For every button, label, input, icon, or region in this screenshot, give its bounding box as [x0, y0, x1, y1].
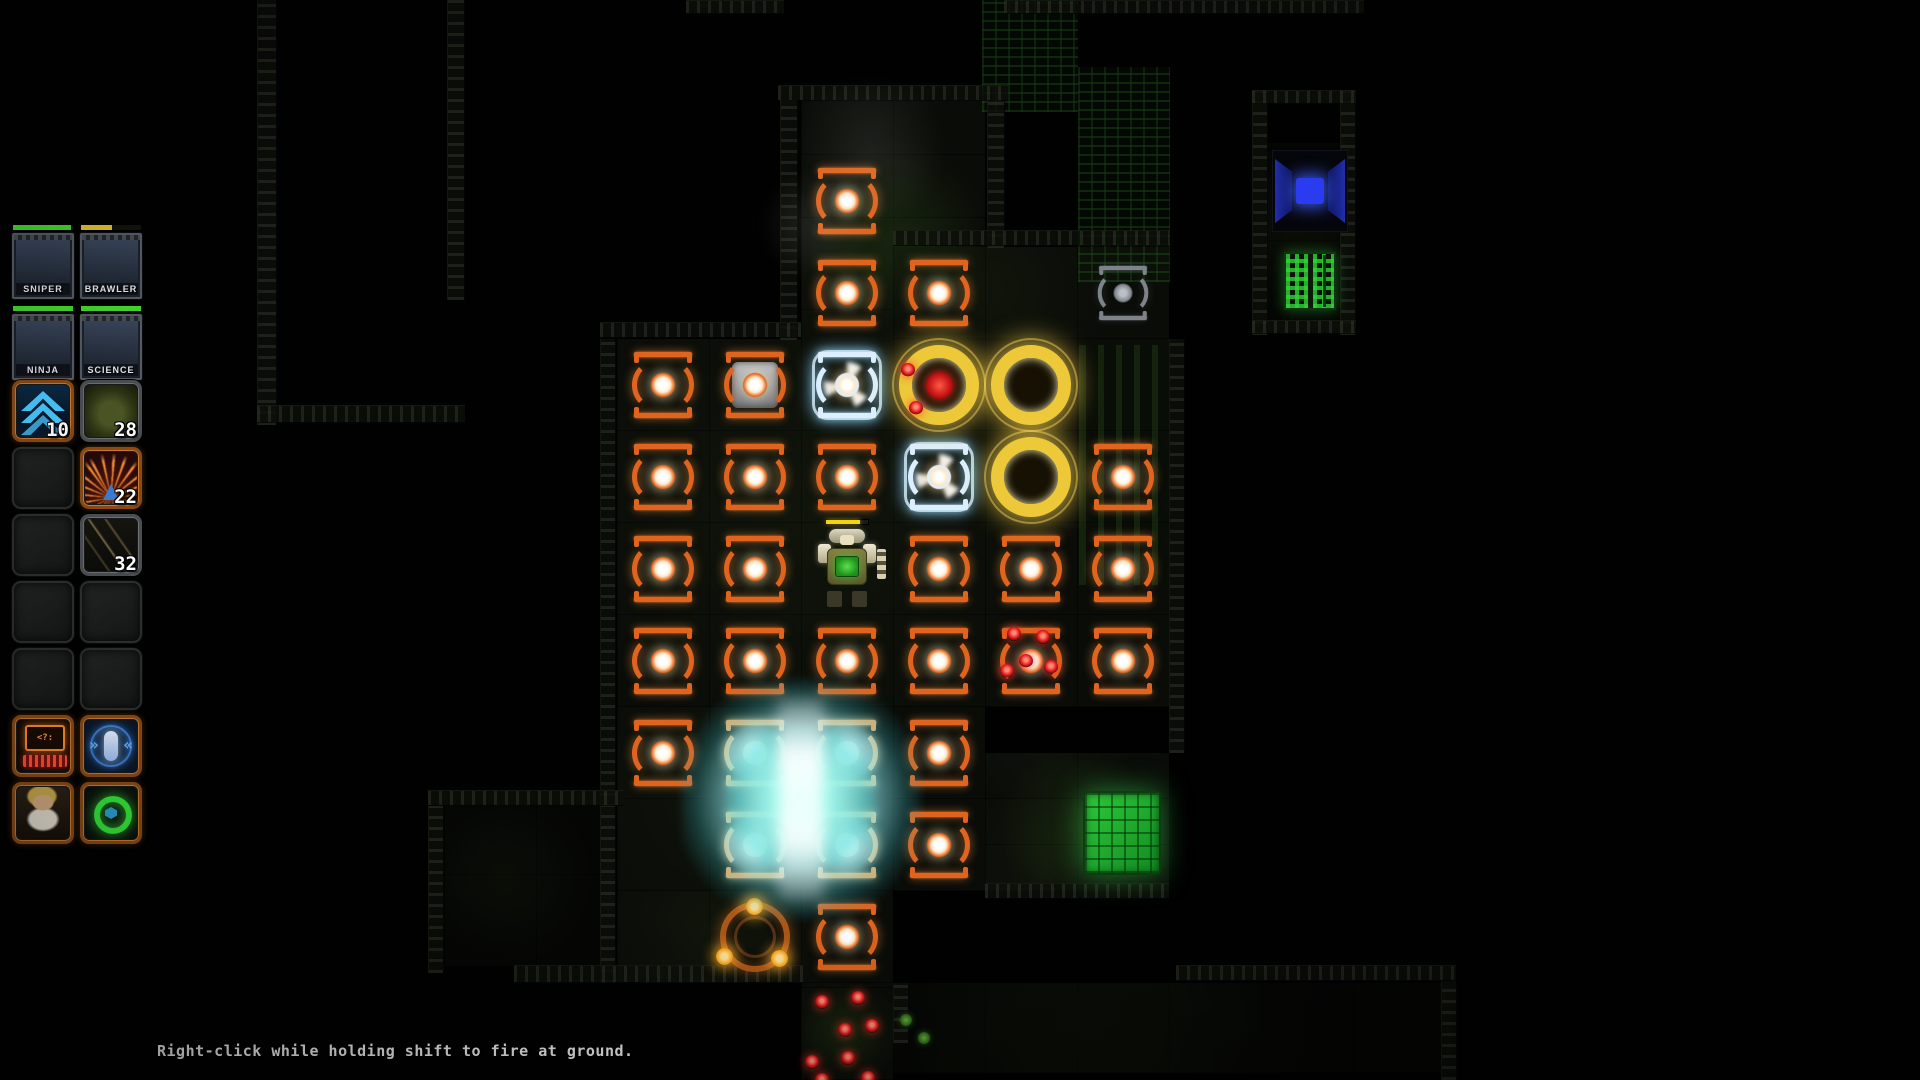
portrait-sniper[interactable]: SNIPER [12, 233, 74, 299]
hotbar-slot-empty [12, 447, 74, 509]
portrait-icon [17, 787, 69, 839]
hotbar-slot-empty [12, 514, 74, 576]
portrait-ninja[interactable]: NINJA [12, 314, 74, 380]
portrait-art [84, 240, 138, 284]
hotbar-slot-targeting[interactable]: »« [80, 715, 142, 777]
health-bar [80, 224, 142, 231]
hotbar-slot-armor[interactable]: 28 [80, 380, 142, 442]
health-fill [13, 225, 71, 230]
health-bar [12, 224, 74, 231]
hotbar-slot-shrapnel[interactable]: 32 [80, 514, 142, 576]
portrait-art [16, 240, 70, 284]
targeting-icon: »« [85, 720, 137, 772]
portrait-brawler[interactable]: BRAWLER [80, 233, 142, 299]
health-fill [81, 306, 141, 311]
hotbar-slot-empty [80, 648, 142, 710]
health-bar [80, 305, 142, 312]
squad-sidebar: SNIPERBRAWLERNINJASCIENCE10282232<?:»« [0, 0, 1920, 1080]
game-screen: SNIPERBRAWLERNINJASCIENCE10282232<?:»« R… [0, 0, 1920, 1080]
hotbar-slot-empty [80, 581, 142, 643]
health-fill [13, 306, 73, 311]
hint-text: Right-click while holding shift to fire … [157, 1042, 634, 1060]
portrait-art [84, 321, 138, 365]
hotbar-slot-portrait[interactable] [12, 782, 74, 844]
slot-count: 28 [114, 419, 137, 441]
portrait-art [16, 321, 70, 365]
recycle-icon [85, 787, 137, 839]
hotbar-slot-terminal[interactable]: <?: [12, 715, 74, 777]
health-fill [81, 225, 112, 230]
portrait-science[interactable]: SCIENCE [80, 314, 142, 380]
hotbar-slot-recycle[interactable] [80, 782, 142, 844]
portrait-name: SNIPER [16, 283, 70, 295]
hotbar-slot-empty [12, 648, 74, 710]
slot-count: 32 [114, 553, 137, 575]
slot-count: 10 [46, 419, 69, 441]
hotbar-slot-jump[interactable]: 10 [12, 380, 74, 442]
health-bar [12, 305, 74, 312]
portrait-name: SCIENCE [84, 364, 138, 376]
portrait-name: BRAWLER [84, 283, 138, 295]
slot-count: 22 [114, 486, 137, 508]
hotbar-slot-empty [12, 581, 74, 643]
portrait-name: NINJA [16, 364, 70, 376]
hotbar-slot-flame[interactable]: 22 [80, 447, 142, 509]
terminal-icon: <?: [17, 720, 69, 772]
